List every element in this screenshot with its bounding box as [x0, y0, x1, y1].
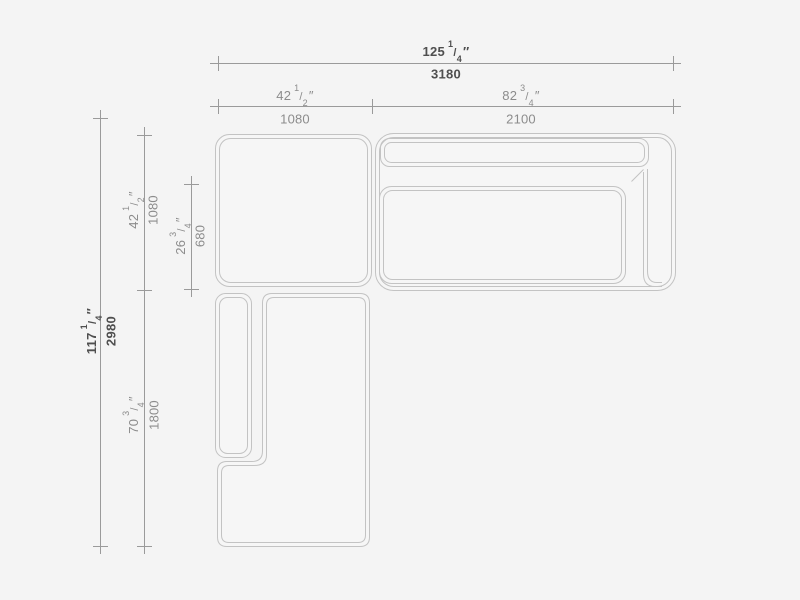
inch-mark: ″: [173, 217, 188, 222]
dim-overall-width-mm: 3180: [431, 68, 461, 81]
dim-right-module-width-mm: 2100: [506, 113, 536, 126]
sofa-modules: [216, 134, 676, 547]
dim-value: 1080: [146, 195, 161, 225]
module-corner-outline: [216, 135, 372, 287]
dim-value: 2100: [506, 112, 536, 127]
dim-seat-depth-mm: 680: [194, 225, 207, 247]
dim-value: 125: [422, 44, 445, 59]
dim-value: 1800: [147, 400, 162, 430]
fraction-numerator: 1: [79, 324, 89, 329]
fraction-denominator: 2: [136, 197, 146, 202]
dim-seat-depth-inches: 263/4″: [174, 217, 188, 254]
fraction-denominator: 2: [303, 98, 308, 108]
dim-overall-depth-inches: 1171/4″: [85, 308, 99, 354]
module-right-outline: [376, 134, 676, 291]
dim-right-module-width-inches: 823/4″: [502, 89, 539, 103]
inch-mark: ″: [535, 88, 540, 103]
sofa-plan-svg: [0, 0, 800, 600]
fraction-denominator: 4: [457, 54, 462, 64]
drawing-canvas: 1251/4″ 3180 421/2″ 1080 823/4″ 2100 117…: [0, 0, 800, 600]
fraction-numerator: 3: [520, 83, 525, 93]
fraction-denominator: 4: [136, 402, 146, 407]
dim-value: 3180: [431, 67, 461, 82]
module-chaise-backrest-outline: [216, 294, 252, 458]
inch-mark: ″: [126, 396, 141, 401]
inch-mark: ″: [126, 191, 141, 196]
dim-value: 42: [276, 88, 291, 103]
fraction-numerator: 1: [448, 39, 453, 49]
dim-value: 680: [193, 225, 208, 247]
dim-left-module-width-mm: 1080: [280, 113, 310, 126]
inch-mark: ″: [84, 308, 99, 315]
dimension-lines: [93, 56, 681, 554]
dim-overall-depth-mm: 2980: [105, 316, 118, 346]
dim-value: 42: [126, 214, 141, 229]
dim-value: 2980: [104, 316, 119, 346]
dim-chaise-length-mm: 1800: [148, 400, 161, 430]
fraction-denominator: 4: [529, 98, 534, 108]
dim-left-module-width-inches: 421/2″: [276, 89, 313, 103]
inch-mark: ″: [463, 44, 470, 59]
fraction-numerator: 3: [121, 411, 131, 416]
dim-value: 26: [173, 240, 188, 255]
dim-value: 70: [126, 419, 141, 434]
dim-value: 1080: [280, 112, 310, 127]
fraction-numerator: 1: [294, 83, 299, 93]
dim-value: 117: [84, 332, 99, 354]
dim-chaise-length-inches: 703/4″: [127, 396, 141, 433]
dim-top-module-depth-mm: 1080: [147, 195, 160, 225]
fraction-numerator: 3: [168, 232, 178, 237]
dim-value: 82: [502, 88, 517, 103]
dim-top-module-depth-inches: 421/2″: [127, 191, 141, 228]
inch-mark: ″: [309, 88, 314, 103]
fraction-numerator: 1: [121, 206, 131, 211]
dim-overall-width-inches: 1251/4″: [422, 45, 469, 59]
fraction-denominator: 4: [183, 223, 193, 228]
fraction-denominator: 4: [94, 315, 104, 320]
